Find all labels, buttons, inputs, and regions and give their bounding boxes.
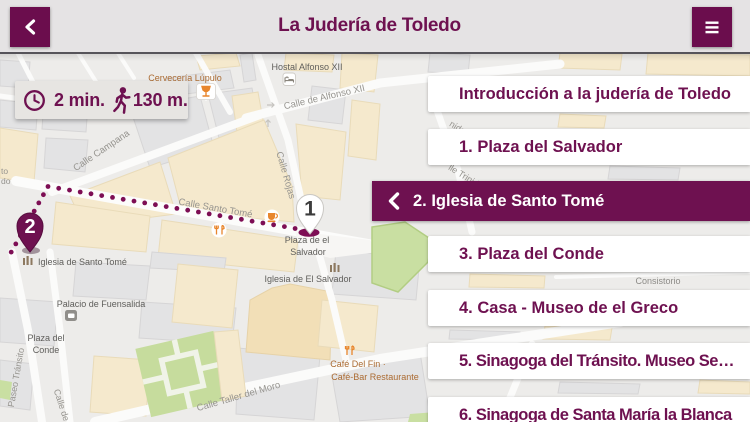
svg-text:1: 1 (304, 198, 316, 221)
svg-text:Hostal Alfonso XII: Hostal Alfonso XII (271, 62, 342, 72)
svg-text:Salvador: Salvador (290, 247, 326, 257)
svg-text:Iglesia de El Salvador: Iglesia de El Salvador (264, 274, 351, 284)
svg-text:Café Del Fin ·: Café Del Fin · (330, 359, 386, 369)
svg-text:Conde: Conde (33, 345, 60, 355)
svg-text:Palacio de Fuensalida: Palacio de Fuensalida (57, 299, 146, 309)
svg-text:2: 2 (24, 216, 35, 238)
svg-text:Café-Bar Restaurante: Café-Bar Restaurante (331, 372, 419, 382)
svg-text:Plaza del: Plaza del (27, 333, 64, 343)
svg-text:Consistorio: Consistorio (635, 276, 680, 286)
svg-text:do: do (1, 176, 11, 186)
svg-text:Iglesia de Santo Tomé: Iglesia de Santo Tomé (38, 257, 127, 267)
svg-text:to: to (1, 166, 8, 176)
